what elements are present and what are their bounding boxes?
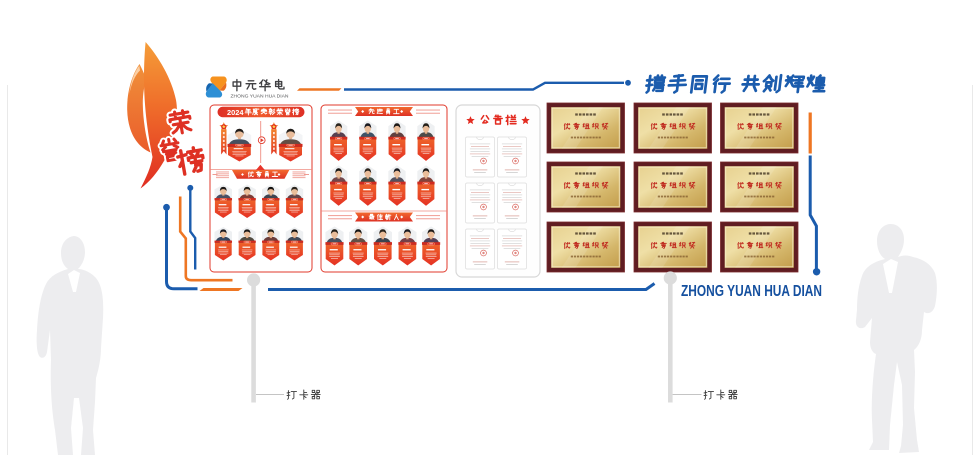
svg-text:2024: 2024 (227, 108, 244, 117)
svg-text:ZHONG YUAN HUA DIAN: ZHONG YUAN HUA DIAN (681, 283, 822, 300)
svg-text:ZHONG YUAN HUA DIAN: ZHONG YUAN HUA DIAN (231, 93, 289, 98)
